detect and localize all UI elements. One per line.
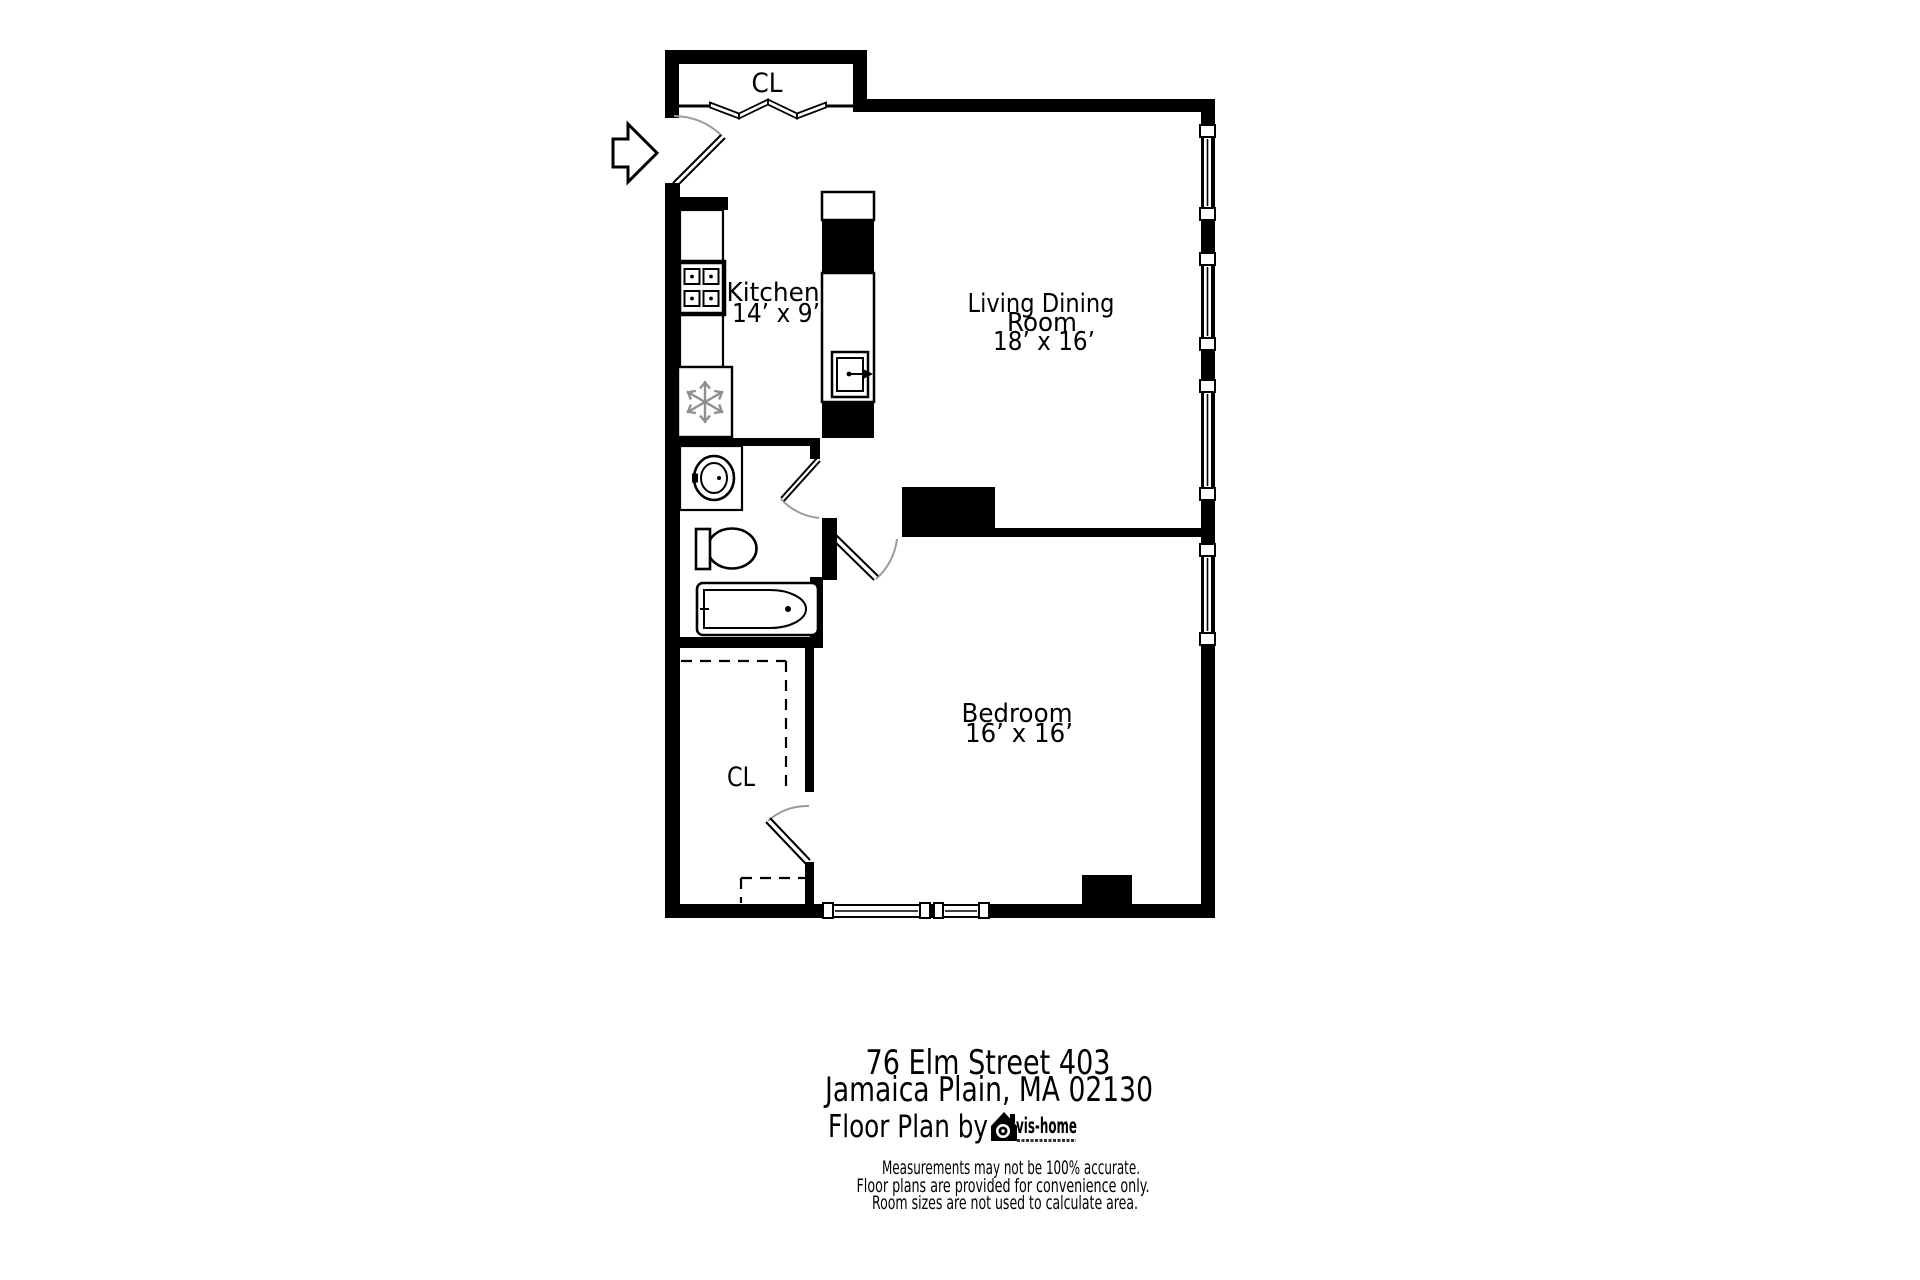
- wall-divider-block: [902, 487, 995, 537]
- wall-divider-thin: [995, 528, 1202, 537]
- wall-closet2-right-upper: [805, 648, 814, 792]
- bedroom-closet: CL: [681, 661, 810, 903]
- bedroom-door-leaf: [830, 533, 878, 580]
- accordion-door-icon: [710, 100, 826, 119]
- toilet-icon: [696, 529, 757, 570]
- window-sill: [1200, 338, 1215, 350]
- footer: 76 Elm Street 403 Jamaica Plain, MA 0213…: [823, 1043, 1153, 1214]
- bathroom-door-leaf: [781, 458, 820, 501]
- bedroom-closet-label: CL: [727, 762, 755, 793]
- wall-top-main: [853, 99, 1215, 112]
- wall-closet-top: [665, 50, 867, 64]
- wall-closet2-right-lower: [805, 862, 814, 905]
- bathtub-icon: [697, 583, 818, 635]
- entry-closet: CL: [679, 68, 853, 119]
- entry: [613, 116, 725, 186]
- window-sill: [1200, 544, 1215, 556]
- floor-plan-canvas: CL: [0, 0, 1920, 1280]
- bedroom-dimensions: 16’ x 16’: [965, 719, 1073, 749]
- bottom-wall-windows: [823, 903, 989, 918]
- window-sill: [979, 903, 989, 918]
- bedroom-door: [830, 533, 897, 580]
- entry-door-arc: [674, 116, 722, 136]
- window-sill: [1200, 488, 1215, 500]
- wall-entry-stub: [680, 197, 728, 210]
- wall-closet-left: [665, 50, 679, 118]
- bathroom-door-arc: [781, 499, 819, 518]
- refrigerator-icon: [678, 367, 732, 437]
- closet-door-leaf: [766, 818, 810, 864]
- window-sill: [1200, 253, 1215, 265]
- kitchen-island: [822, 192, 874, 438]
- bedroom-door-arc: [876, 539, 897, 579]
- entry-closet-label: CL: [752, 68, 783, 99]
- window-sill: [1200, 208, 1215, 220]
- kitchen-dimensions: 14’ x 9’: [732, 299, 820, 329]
- wall-bathroom-top: [680, 438, 820, 446]
- window-sill: [1200, 125, 1215, 137]
- brand-name: vis-home: [1016, 1114, 1077, 1138]
- window-sill: [1200, 633, 1215, 645]
- wall-right: [1201, 99, 1215, 918]
- window-sill: [934, 903, 943, 918]
- entry-arrow-icon: [613, 124, 657, 182]
- credit-prefix: Floor Plan by: [828, 1109, 988, 1145]
- vis-home-logo-icon: [991, 1112, 1017, 1141]
- island-sink-icon: [832, 352, 873, 397]
- wall-bathroom-bottom: [680, 637, 823, 648]
- bathroom-sink-icon: [680, 446, 742, 510]
- right-wall-windows: [1200, 125, 1215, 645]
- stove-icon: [679, 262, 724, 314]
- disclaimer-line3: Room sizes are not used to calculate are…: [872, 1192, 1138, 1214]
- bathroom: [680, 446, 820, 635]
- closet-door-arc: [768, 806, 809, 821]
- living-dining-dimensions: 18’ x 16’: [993, 327, 1095, 357]
- window-sill: [920, 903, 930, 918]
- address-line2: Jamaica Plain, MA 02130: [823, 1070, 1153, 1110]
- radiator-block: [1082, 875, 1132, 906]
- window-sill: [1200, 380, 1215, 392]
- wall-bathroom-right-upper: [822, 518, 837, 580]
- entry-door-leaf: [673, 135, 725, 186]
- floor-plan-page: CL: [0, 0, 1920, 1280]
- wall-bathroom-door-stub: [810, 438, 820, 459]
- window-sill: [823, 903, 833, 918]
